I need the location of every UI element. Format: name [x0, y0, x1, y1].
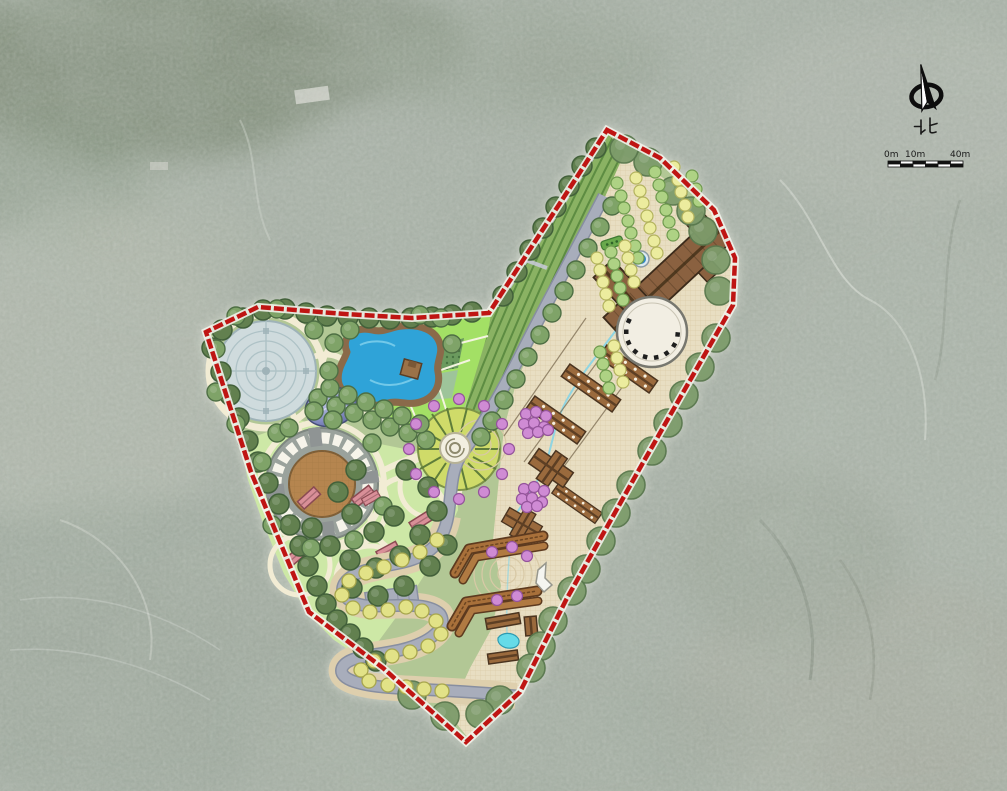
- ring-plaza-centre: [440, 433, 470, 463]
- amphitheater: [265, 427, 380, 542]
- scale-label-0: 0m: [884, 150, 899, 160]
- scale-label-40: 40m: [950, 150, 970, 160]
- scale-label-10: 10m: [905, 150, 925, 160]
- masterplan-canvas: 北 0m 10m 40m: [0, 0, 1007, 791]
- scale-bar-segments: [888, 161, 963, 167]
- fountain: [633, 251, 649, 267]
- kidney-pond: [338, 326, 441, 406]
- small-pond: [498, 633, 519, 648]
- spiral-plaza: [617, 297, 687, 367]
- masterplan-svg: 北 0m 10m 40m: [0, 0, 1007, 791]
